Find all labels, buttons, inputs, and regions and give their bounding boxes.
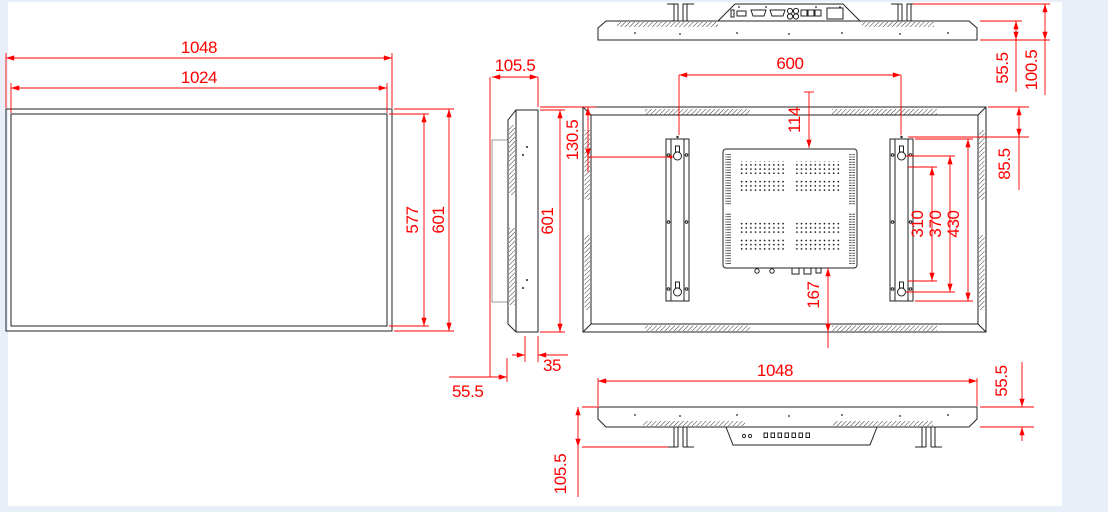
dim-side-rear-depth: 35 bbox=[543, 356, 561, 375]
dim-rear-mount-spacing: 600 bbox=[776, 54, 803, 73]
bottom-vent-hatch-left bbox=[643, 421, 745, 426]
dim-bottom-width: 1048 bbox=[757, 361, 793, 380]
dim-rear-top-to-box: 114 bbox=[785, 107, 804, 133]
dim-rear-box-to-bottom: 167 bbox=[804, 281, 823, 308]
top-vent-hatch-left bbox=[617, 22, 718, 27]
dim-side-body-depth: 55.5 bbox=[452, 382, 484, 401]
dim-front-screen-width: 1024 bbox=[181, 68, 217, 87]
drawing-page: 1048 1024 577 601 105.5 601 35 55.5 bbox=[0, 0, 1108, 512]
side-vent-hatch-top bbox=[509, 125, 515, 195]
dim-top-body-depth: 55.5 bbox=[993, 52, 1012, 84]
dim-rear-top-to-bracket: 85.5 bbox=[995, 148, 1014, 180]
dim-rear-keyhole-span: 370 bbox=[926, 210, 945, 237]
dim-bottom-depth-with-bracket: 105.5 bbox=[551, 454, 570, 495]
dim-front-outer-height: 601 bbox=[429, 206, 448, 233]
dim-rear-top-to-keyhole: 130.5 bbox=[563, 120, 582, 161]
dim-front-outer-width: 1048 bbox=[181, 38, 217, 57]
top-vent-hatch-right bbox=[862, 22, 934, 27]
bottom-vent-hatch-right bbox=[833, 421, 933, 426]
dim-rear-slot-span: 310 bbox=[908, 210, 927, 237]
drawing-paper bbox=[8, 2, 1062, 506]
dim-side-height: 601 bbox=[538, 207, 557, 234]
dim-side-depth-total: 105.5 bbox=[495, 56, 536, 75]
side-vent-hatch-bottom bbox=[509, 228, 515, 305]
dim-front-screen-height: 577 bbox=[403, 206, 422, 233]
dim-bottom-body-depth: 55.5 bbox=[992, 365, 1011, 397]
dim-rear-bracket-length: 430 bbox=[944, 210, 963, 237]
dim-top-total-depth: 100.5 bbox=[1022, 50, 1041, 91]
technical-drawing-canvas: 1048 1024 577 601 105.5 601 35 55.5 bbox=[0, 0, 1108, 512]
